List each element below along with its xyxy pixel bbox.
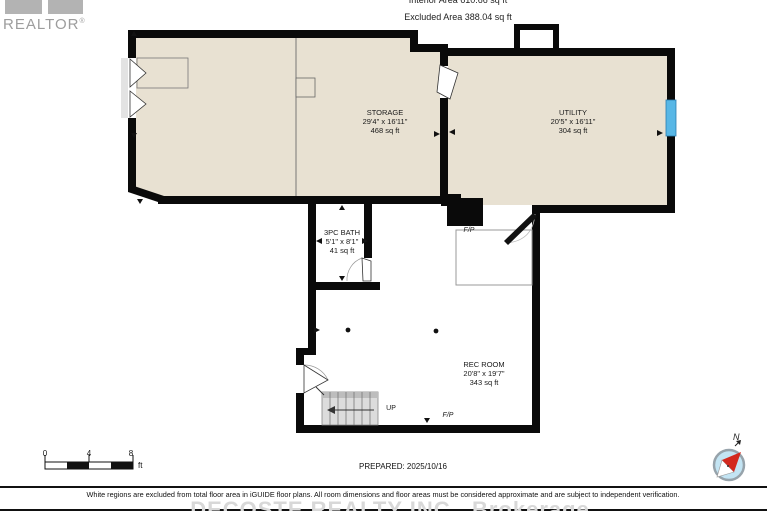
room-area: 41 sq ft	[324, 246, 360, 255]
room-label-bath: 3PC BATH 5'1" x 8'1" 41 sq ft	[324, 228, 360, 255]
prepared-date: PREPARED: 2025/10/16	[359, 462, 447, 471]
room-area: 304 sq ft	[551, 126, 596, 135]
floorplan-drawing	[0, 0, 767, 511]
room-name: UTILITY	[551, 108, 596, 117]
north-label: N	[733, 432, 740, 442]
disclaimer-text: White regions are excluded from total fl…	[87, 490, 680, 499]
scale-tick-0: 0	[43, 449, 47, 458]
scale-unit: ft	[138, 461, 142, 470]
fireplace-label-upper: F/P	[464, 227, 475, 234]
room-area: 468 sq ft	[363, 126, 408, 135]
room-dimensions: 20'5" x 16'11"	[551, 117, 596, 126]
room-label-utility: UTILITY 20'5" x 16'11" 304 sq ft	[551, 108, 596, 135]
fireplace-icon	[441, 194, 483, 226]
room-label-storage: STORAGE 29'4" x 16'11" 468 sq ft	[363, 108, 408, 135]
compass-icon	[714, 440, 744, 480]
brokerage-watermark: DECOSTE REALTY INC., Brokerage	[190, 497, 590, 511]
floorplan-page: REALTOR® Interior Area 610.66 sq ft Excl…	[0, 0, 767, 511]
support-posts	[346, 328, 439, 334]
room-dimensions: 5'1" x 8'1"	[324, 237, 360, 246]
room-dimensions: 20'8" x 19'7"	[463, 369, 504, 378]
scale-tick-4: 4	[87, 449, 91, 458]
door-sill	[121, 58, 128, 118]
up-label: UP	[386, 405, 396, 412]
stairs-icon	[316, 387, 378, 425]
room-area: 343 sq ft	[463, 378, 504, 387]
footer-divider	[0, 486, 767, 488]
room-label-rec-room: REC ROOM 20'8" x 19'7" 343 sq ft	[463, 360, 504, 387]
hearth-outline	[456, 230, 532, 285]
window-marker	[666, 100, 676, 136]
scale-tick-8: 8	[129, 449, 133, 458]
room-name: STORAGE	[363, 108, 408, 117]
room-name: 3PC BATH	[324, 228, 360, 237]
room-name: REC ROOM	[463, 360, 504, 369]
room-dimensions: 29'4" x 16'11"	[363, 117, 408, 126]
fireplace-label-lower: F/P	[443, 412, 454, 419]
